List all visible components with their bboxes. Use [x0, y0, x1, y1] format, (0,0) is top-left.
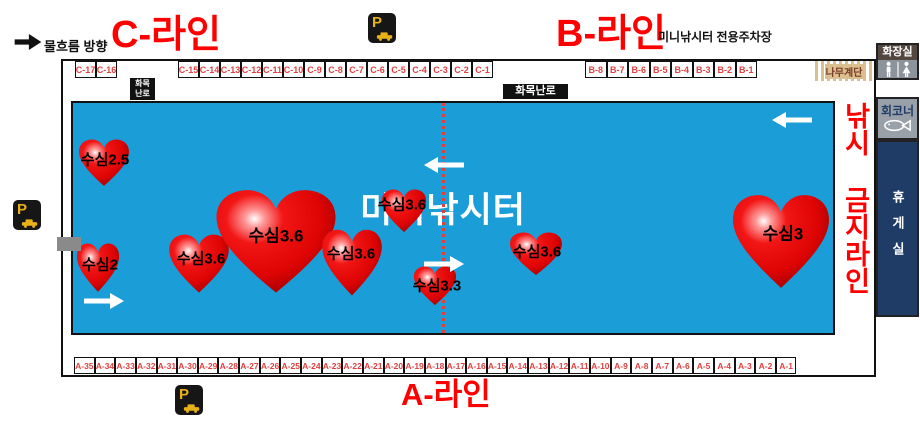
stall-cell: C-5: [388, 61, 409, 78]
stall-cell: A-8: [631, 357, 652, 374]
stall-cell: A-17: [446, 357, 467, 374]
stall-cell: A-25: [280, 357, 301, 374]
stall-cell: A-18: [425, 357, 446, 374]
toilet-label: 화장실: [878, 45, 917, 60]
no-fishing-line-label: 낚시 금지라인: [839, 102, 871, 337]
rest-room-label: 휴게실: [888, 190, 907, 268]
stall-cell: C-11: [262, 61, 283, 78]
stall-cell: C-17: [75, 61, 96, 78]
stall-cell: A-4: [714, 357, 735, 374]
stall-cell: A-2: [755, 357, 776, 374]
stall-cell: B-6: [628, 61, 650, 78]
stall-cell: A-22: [342, 357, 363, 374]
stall-cell: A-32: [136, 357, 157, 374]
b-line-stalls: B-8B-7B-6B-5B-4B-3B-2B-1: [585, 61, 757, 78]
walkway-gap: [117, 61, 178, 78]
stall-cell: A-5: [693, 357, 714, 374]
fishing-site-map: 물흐름 방향 C-라인 B-라인 미니낚시터 전용주차장 A-라인 P P P: [0, 0, 920, 427]
parking-lot-note: 미니낚시터 전용주차장: [658, 28, 772, 45]
stall-cell: A-26: [260, 357, 281, 374]
depth-label: 수심3.6: [327, 247, 375, 262]
c-line-stalls-left: C-17C-16: [75, 61, 117, 78]
stall-cell: C-3: [430, 61, 451, 78]
water-flow-arrow-icon: [424, 157, 464, 173]
stall-cell: A-3: [735, 357, 756, 374]
parking-icon: P: [13, 200, 41, 230]
stall-cell: A-28: [218, 357, 239, 374]
rest-room: 휴게실: [876, 140, 919, 317]
depth-label: 수심3.6: [249, 228, 304, 245]
car-icon: [183, 403, 201, 413]
stall-cell: A-9: [611, 357, 632, 374]
depth-label: 수심3.6: [513, 245, 561, 260]
c-line-title: C-라인: [111, 16, 221, 54]
toilet-building: 화장실: [876, 43, 919, 80]
wooden-stairs: 나무계단: [815, 61, 873, 81]
stall-cell: A-12: [549, 357, 570, 374]
parking-letter: P: [17, 201, 27, 218]
stall-cell: A-20: [384, 357, 405, 374]
stall-cell: C-12: [241, 61, 262, 78]
depth-label: 수심2.5: [81, 153, 129, 168]
stall-cell: A-19: [404, 357, 425, 374]
stall-cell: C-4: [409, 61, 430, 78]
wood-stove-sign: 화목 난로: [130, 78, 155, 100]
stall-cell: B-5: [650, 61, 672, 78]
stall-row-bottom: A-35A-34A-33A-32A-31A-30A-29A-28A-27A-26…: [74, 357, 796, 374]
stall-cell: A-11: [569, 357, 590, 374]
man-woman-icon: [882, 61, 914, 78]
stall-cell: A-21: [363, 357, 384, 374]
parking-letter: P: [179, 386, 189, 403]
depth-heart-icon: [321, 229, 383, 297]
stall-cell: C-13: [220, 61, 241, 78]
a-line-title: A-라인: [401, 379, 491, 410]
water-flow-arrow-icon: [772, 112, 812, 128]
stall-cell: A-35: [74, 357, 95, 374]
flow-direction-arrow-icon: [14, 34, 42, 50]
depth-label: 수심3.6: [378, 198, 426, 213]
stall-cell: C-7: [346, 61, 367, 78]
water-inlet-pipe: [57, 237, 81, 251]
b-line-title: B-라인: [556, 15, 666, 53]
stall-cell: C-9: [304, 61, 325, 78]
stall-cell: A-29: [198, 357, 219, 374]
stall-cell: C-15: [178, 61, 199, 78]
stall-row-top: C-17C-16 C-15C-14C-13C-12C-11C-10C-9C-8C…: [75, 61, 873, 78]
stall-cell: A-27: [239, 357, 260, 374]
stall-cell: A-10: [590, 357, 611, 374]
stall-cell: C-1: [472, 61, 493, 78]
wood-stove-label: 난로: [130, 89, 155, 99]
restroom-icons: [878, 60, 917, 78]
stall-cell: C-2: [451, 61, 472, 78]
parking-letter: P: [372, 14, 382, 31]
parking-icon: P: [175, 385, 203, 415]
pond: 미니낚시터 수심2.5수심2수심3.6수심3.6수심3.6수심3.6수심3.3수…: [71, 101, 835, 335]
stall-cell: A-24: [301, 357, 322, 374]
stall-cell: A-14: [507, 357, 528, 374]
wooden-stairs-label: 나무계단: [825, 64, 864, 79]
water-flow-arrow-icon: [84, 293, 124, 309]
stall-cell: B-4: [671, 61, 693, 78]
stall-cell: B-3: [693, 61, 715, 78]
stall-cell: A-34: [95, 357, 116, 374]
stall-cell: C-14: [199, 61, 220, 78]
raw-fish-corner: 회코너: [876, 97, 919, 140]
stall-cell: A-7: [652, 357, 673, 374]
stall-cell: C-10: [283, 61, 304, 78]
water-flow-arrow-icon: [424, 256, 464, 272]
stall-cell: B-8: [585, 61, 607, 78]
stall-cell: A-16: [466, 357, 487, 374]
wood-stove-label: 화목: [130, 79, 155, 89]
depth-label: 수심3: [763, 226, 804, 243]
car-icon: [376, 31, 394, 41]
stall-cell: C-6: [367, 61, 388, 78]
wood-stove-sign: 화목난로: [503, 84, 568, 99]
parking-icon: P: [368, 13, 396, 43]
stall-cell: A-31: [157, 357, 178, 374]
stall-cell: C-16: [96, 61, 117, 78]
stall-cell: B-2: [714, 61, 736, 78]
walkway-gap: [757, 61, 815, 78]
stall-cell: A-1: [776, 357, 797, 374]
stall-cell: B-7: [607, 61, 629, 78]
stall-cell: A-30: [177, 357, 198, 374]
stall-cell: A-15: [487, 357, 508, 374]
depth-label: 수심2: [82, 258, 118, 273]
a-line-stalls: A-35A-34A-33A-32A-31A-30A-29A-28A-27A-26…: [74, 357, 796, 374]
depth-label: 수심3.3: [413, 279, 461, 294]
c-line-stalls-right: C-15C-14C-13C-12C-11C-10C-9C-8C-7C-6C-5C…: [178, 61, 493, 78]
car-icon: [21, 218, 39, 228]
walkway-gap: [493, 61, 585, 78]
flow-direction-label: 물흐름 방향: [44, 36, 107, 55]
stall-cell: A-33: [115, 357, 136, 374]
stall-cell: C-8: [325, 61, 346, 78]
stall-cell: A-6: [673, 357, 694, 374]
stall-cell: A-13: [528, 357, 549, 374]
stall-cell: B-1: [736, 61, 758, 78]
raw-fish-corner-label: 회코너: [881, 104, 914, 118]
no-fishing-line-text: 낚시 금지라인: [840, 102, 870, 337]
fish-icon: [882, 118, 914, 133]
stall-cell: A-23: [322, 357, 343, 374]
